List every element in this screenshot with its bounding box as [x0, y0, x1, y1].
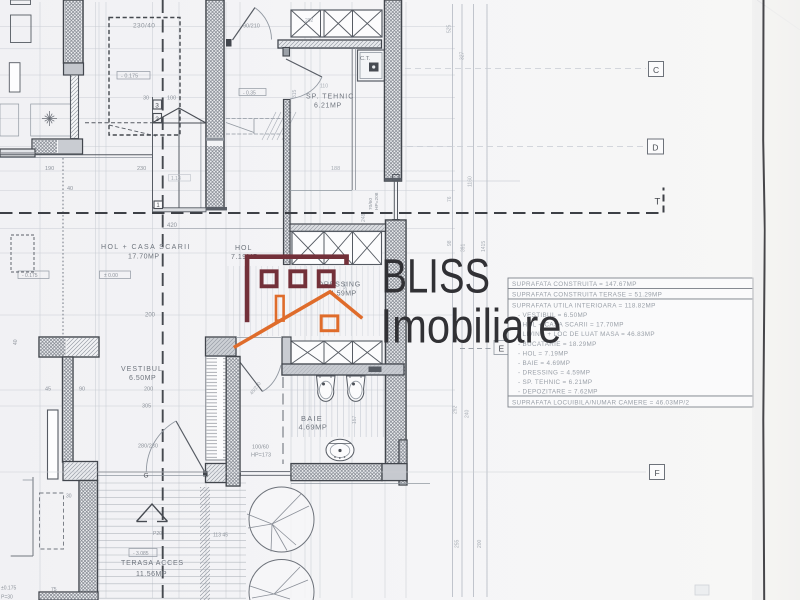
svg-text:- 0.35: - 0.35 — [243, 90, 256, 96]
svg-text:SUPRAFATA CONSTRUITA TERASE =: SUPRAFATA CONSTRUITA TERASE = 51.29MP — [512, 292, 662, 299]
svg-text:3: 3 — [155, 102, 159, 109]
svg-text:315: 315 — [292, 89, 298, 98]
svg-text:±0.175: ±0.175 — [1, 586, 16, 592]
svg-text:BLISS: BLISS — [382, 250, 491, 304]
svg-text:45: 45 — [45, 387, 51, 393]
svg-text:6.21MP: 6.21MP — [314, 103, 342, 110]
svg-text:327: 327 — [460, 51, 466, 60]
svg-text:98: 98 — [447, 240, 453, 246]
svg-text:HP=208: HP=208 — [374, 192, 380, 210]
svg-text:11.56MP: 11.56MP — [136, 571, 167, 578]
svg-text:230: 230 — [137, 166, 146, 172]
svg-text:292: 292 — [453, 405, 459, 414]
svg-text:SUPRAFATA LOCUIBILA/NUMAR CAME: SUPRAFATA LOCUIBILA/NUMAR CAMERE = 46.03… — [512, 400, 690, 407]
svg-text:TERASA ACCES: TERASA ACCES — [121, 560, 184, 567]
svg-text:190: 190 — [45, 166, 54, 172]
svg-text:202: 202 — [305, 18, 314, 24]
svg-text:- BAIE = 4.69MP: - BAIE = 4.69MP — [518, 360, 570, 367]
svg-text:188: 188 — [331, 166, 340, 172]
svg-text:255: 255 — [455, 539, 461, 548]
svg-text:90/210: 90/210 — [243, 24, 260, 30]
svg-text:2: 2 — [155, 116, 159, 123]
svg-text:C.T.: C.T. — [360, 56, 371, 62]
svg-text:G: G — [144, 473, 149, 480]
svg-text:100/60: 100/60 — [252, 445, 269, 451]
svg-text:100: 100 — [167, 96, 176, 102]
svg-text:1.18: 1.18 — [171, 176, 181, 182]
svg-text:230/40: 230/40 — [133, 23, 155, 30]
svg-text:90: 90 — [79, 387, 85, 393]
svg-text:30: 30 — [143, 96, 149, 102]
svg-text:- 3.085: - 3.085 — [133, 551, 149, 557]
svg-text:6.50MP: 6.50MP — [129, 375, 156, 382]
svg-text:200: 200 — [145, 313, 156, 319]
svg-text:F: F — [655, 468, 660, 478]
svg-text:110: 110 — [320, 84, 328, 90]
svg-text:SP. TEHNIC: SP. TEHNIC — [306, 94, 354, 101]
svg-text:70/60: 70/60 — [368, 198, 374, 210]
svg-text:- SP. TEHNIC = 6.21MP: - SP. TEHNIC = 6.21MP — [518, 379, 592, 386]
svg-text:30: 30 — [66, 494, 72, 500]
svg-text:VESTIBUL: VESTIBUL — [121, 366, 163, 373]
svg-text:HOL: HOL — [235, 245, 252, 252]
svg-text:157: 157 — [352, 415, 358, 424]
svg-text:- DEPOZITARE = 7.62MP: - DEPOZITARE = 7.62MP — [518, 389, 598, 396]
svg-text:D: D — [652, 143, 658, 153]
svg-text:280/230: 280/230 — [138, 444, 158, 450]
svg-text:SUPRAFATA CONSTRUITA = 147.6: SUPRAFATA CONSTRUITA = 147.67MP — [512, 281, 637, 288]
svg-text:P=30: P=30 — [1, 595, 13, 601]
svg-text:C: C — [653, 65, 659, 75]
svg-text:T: T — [655, 197, 661, 208]
svg-text:- DRESSING = 4.59MP: - DRESSING = 4.59MP — [518, 370, 590, 377]
svg-text:HP=173: HP=173 — [251, 453, 271, 459]
svg-text:4.69MP: 4.69MP — [299, 423, 328, 432]
svg-text:248: 248 — [361, 213, 367, 222]
svg-text:200: 200 — [477, 539, 483, 548]
svg-text:40: 40 — [13, 339, 19, 345]
svg-text:240: 240 — [465, 409, 471, 418]
svg-text:1160: 1160 — [468, 176, 474, 187]
svg-text:17.70MP: 17.70MP — [128, 254, 160, 261]
svg-text:± 0.00: ± 0.00 — [104, 273, 118, 279]
svg-text:75: 75 — [51, 587, 57, 593]
svg-text:200: 200 — [144, 387, 153, 393]
svg-text:113 45: 113 45 — [213, 533, 228, 539]
svg-text:525: 525 — [447, 24, 453, 33]
svg-text:P20: P20 — [153, 531, 162, 537]
svg-text:HOL + CASA SCARII: HOL + CASA SCARII — [101, 244, 191, 251]
svg-text:76: 76 — [447, 196, 453, 202]
svg-text:- 0.175: - 0.175 — [121, 74, 138, 80]
svg-text:305: 305 — [142, 404, 151, 410]
svg-text:40: 40 — [67, 186, 73, 192]
svg-text:Imobiliare: Imobiliare — [381, 300, 562, 354]
svg-text:420: 420 — [167, 223, 178, 229]
svg-text:- 0.175: - 0.175 — [22, 273, 38, 279]
